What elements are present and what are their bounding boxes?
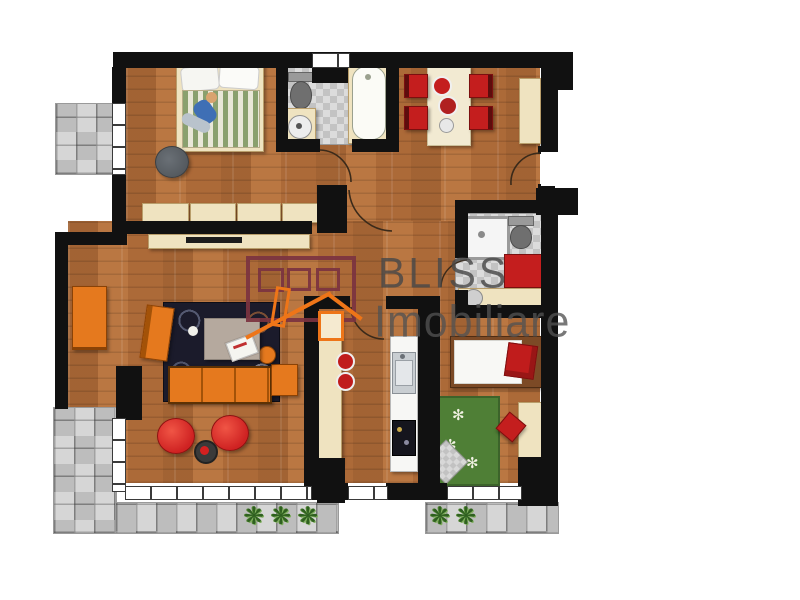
plant-icon: ❋ (452, 505, 480, 529)
dining-chair (404, 106, 428, 130)
terrace-left (53, 407, 117, 534)
dining-chair (469, 74, 493, 98)
three-seat-sofa (168, 366, 272, 404)
balcony-window (112, 103, 126, 175)
washbasin-drain (296, 123, 302, 129)
cooktop-icon (392, 420, 416, 456)
wall (55, 244, 68, 409)
living-bottom-window (125, 486, 312, 500)
plant-icon: ❋ (426, 505, 454, 529)
wall (386, 483, 447, 500)
dining-chair (404, 74, 428, 98)
shower-drain (478, 231, 485, 238)
wall (116, 366, 142, 420)
balcony-floor (55, 103, 115, 175)
bedroom2-window (447, 486, 522, 500)
wall (304, 296, 350, 309)
living-side-window (112, 418, 126, 492)
floor-plan: ❋ ❋ ❋ ❋ ❋ (0, 0, 800, 600)
bed-pillow (180, 64, 220, 93)
bathtub-drain (365, 74, 371, 80)
red-pouf (157, 418, 195, 454)
burner-dot (404, 440, 409, 445)
entrance-opening (541, 152, 558, 186)
plant-icon: ❋ (267, 505, 295, 529)
rug-flower: ✻ (452, 408, 465, 423)
plant-icon: ❋ (294, 505, 322, 529)
rug-white-dot (188, 326, 198, 336)
rug-flower: ✻ (466, 456, 479, 471)
dining-chair (469, 106, 493, 130)
red-pillow (504, 342, 538, 380)
wall (541, 214, 558, 466)
wall (308, 483, 348, 500)
round-dark-rug (155, 146, 189, 178)
wall (541, 68, 558, 152)
plate-red (432, 76, 452, 96)
bathroom-window (312, 53, 350, 68)
wall (276, 139, 320, 152)
orange-stool (258, 346, 276, 364)
wall (112, 67, 126, 105)
wardrobe-section (190, 203, 236, 223)
wall (317, 185, 347, 233)
sideboard (519, 78, 541, 144)
kitchen-window (348, 486, 388, 500)
wardrobe-section (237, 203, 281, 223)
wardrobe-section (282, 203, 318, 223)
plate-red (438, 96, 458, 116)
wall (418, 296, 440, 488)
toilet-icon (510, 225, 532, 249)
plant-icon: ❋ (240, 505, 268, 529)
wall (518, 457, 558, 506)
red-plate (336, 352, 355, 371)
side-table-center (200, 446, 209, 455)
wall (455, 206, 468, 258)
ottoman (271, 364, 298, 396)
toilet-icon (290, 81, 312, 109)
wall (386, 67, 399, 152)
wall (536, 188, 578, 215)
person-head (206, 92, 217, 103)
faucet-icon (400, 354, 405, 359)
wall (455, 305, 541, 318)
wardrobe-section (142, 203, 189, 223)
burner-dot (397, 427, 402, 432)
two-seat-sofa (72, 286, 107, 350)
kitchen-sink-basin (395, 360, 413, 386)
wall (312, 67, 348, 83)
wall (112, 172, 126, 234)
tv-icon (186, 237, 242, 243)
red-plate (336, 372, 355, 391)
plate-white (439, 118, 454, 133)
wall (126, 221, 312, 234)
red-bath-mat (504, 254, 542, 288)
